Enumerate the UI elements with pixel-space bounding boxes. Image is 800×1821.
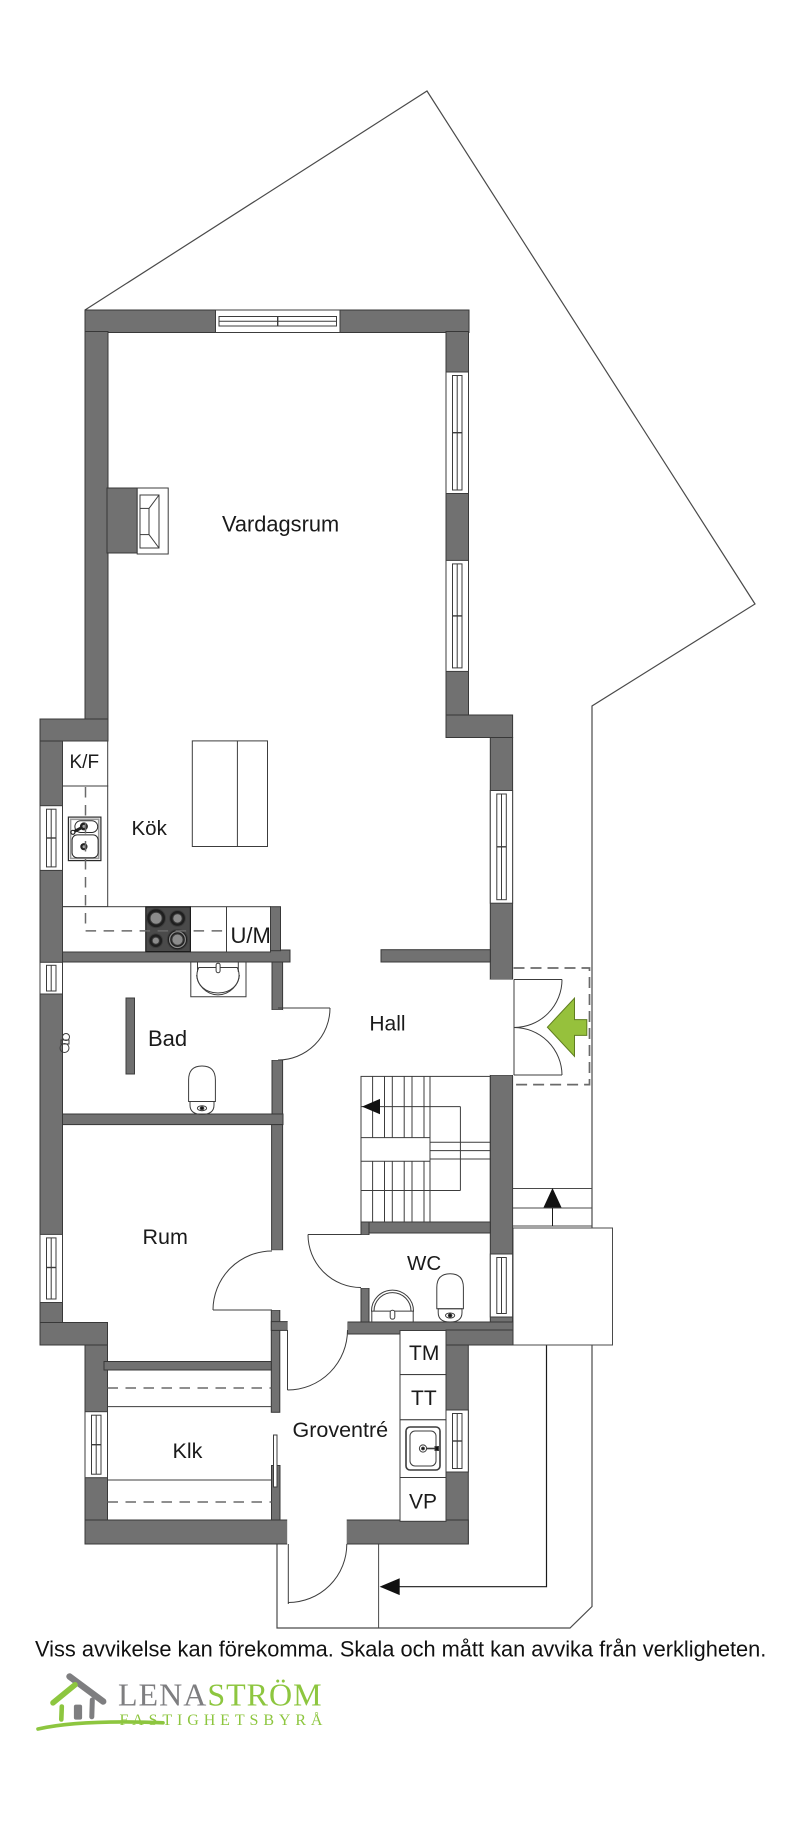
svg-text:Klk: Klk [173, 1439, 203, 1463]
svg-text:TM: TM [409, 1342, 439, 1365]
svg-text:VP: VP [409, 1491, 437, 1514]
svg-text:Rum: Rum [143, 1225, 188, 1249]
svg-text:Hall: Hall [369, 1013, 405, 1036]
svg-text:Kök: Kök [132, 817, 168, 840]
svg-text:Groventré: Groventré [293, 1418, 389, 1442]
svg-text:FASTIGHETSBYRÅ: FASTIGHETSBYRÅ [120, 1711, 328, 1729]
svg-text:K/F: K/F [70, 752, 100, 773]
svg-text:U/M: U/M [231, 923, 271, 948]
svg-text:WC: WC [407, 1252, 441, 1275]
svg-text:Viss avvikelse kan förekomma.: Viss avvikelse kan förekomma. Skala och … [35, 1637, 766, 1662]
svg-text:Vardagsrum: Vardagsrum [222, 512, 339, 537]
svg-text:Bad: Bad [148, 1026, 187, 1051]
svg-text:LENASTRÖM: LENASTRÖM [118, 1677, 323, 1713]
svg-text:TT: TT [411, 1387, 437, 1410]
